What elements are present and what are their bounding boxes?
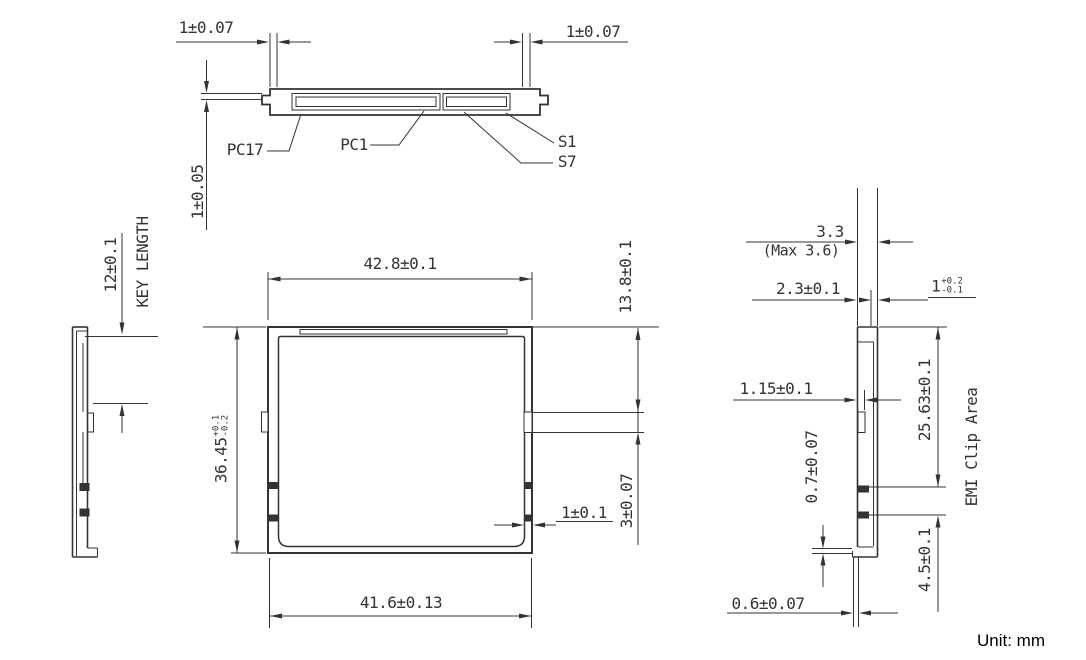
dim-rail-width bbox=[494, 522, 613, 528]
top-view-s-pin-row-inner bbox=[447, 97, 507, 107]
lip-tol-minus: -0.1 bbox=[941, 287, 963, 296]
overall-height-value: 36.45 bbox=[214, 438, 230, 484]
pin-label-s7: S7 bbox=[558, 154, 576, 170]
dim-guide-width bbox=[752, 298, 976, 303]
dim-label-left-key-offset: 1±0.07 bbox=[179, 20, 234, 36]
dim-bottom-lip bbox=[812, 525, 852, 587]
unit-note: Unit: mm bbox=[977, 631, 1045, 651]
dim-label-emi-clip-top: 25.63±0.1 bbox=[917, 359, 933, 441]
left-view-key-notch bbox=[88, 413, 94, 432]
dim-label-emi-clip-height: 4.5±0.1 bbox=[917, 528, 933, 592]
dim-label-step: 1.15±0.1 bbox=[739, 381, 812, 397]
dim-label-key-length: 12±0.1 bbox=[103, 238, 119, 293]
top-view-s-pin-row bbox=[443, 94, 510, 111]
front-view-drawing bbox=[203, 272, 659, 628]
dim-label-thickness: 3.3 bbox=[816, 224, 843, 240]
dim-label-slot-from-top: 13.8±0.1 bbox=[618, 240, 634, 313]
dim-label-rail-width: 1±0.1 bbox=[561, 505, 607, 521]
left-view-emi-clip-lower bbox=[80, 509, 90, 517]
dim-label-bottom-lip: 0.7±0.07 bbox=[804, 430, 820, 503]
dim-emi-clip-top bbox=[879, 327, 947, 487]
dim-label-lip: 1+0.2-0.1 bbox=[931, 278, 963, 297]
front-view-inner-outline bbox=[279, 337, 525, 547]
pin-label-pc1: PC1 bbox=[340, 137, 367, 153]
lip-value: 1 bbox=[931, 279, 940, 295]
front-view-emi-clips bbox=[269, 482, 533, 522]
overall-height-tol-minus: -0.2 bbox=[222, 415, 231, 437]
front-view-top-lip bbox=[300, 330, 507, 335]
right-view-key-notch bbox=[858, 412, 865, 433]
right-view-emi-clip-lower bbox=[858, 512, 869, 519]
mechanical-drawing-canvas: 1±0.07 1±0.07 1±0.05 PC17 PC1 S1 S7 12±0… bbox=[0, 0, 1086, 660]
pin-leader-lines bbox=[267, 111, 554, 163]
front-view-right-key-notch bbox=[524, 412, 532, 433]
dim-label-lip-thickness: 1±0.05 bbox=[190, 165, 206, 220]
dim-right-key-offset bbox=[494, 33, 628, 87]
dim-label-slot-height: 3±0.07 bbox=[619, 474, 635, 529]
dim-label-thickness-max: (Max 3.6) bbox=[763, 244, 840, 259]
top-view-pc-pin-row-inner bbox=[296, 97, 436, 107]
left-view-emi-clip-upper bbox=[80, 483, 90, 491]
pin-label-s1: S1 bbox=[558, 134, 576, 150]
dim-label-overall-width: 42.8±0.1 bbox=[363, 256, 436, 272]
dim-label-overall-height: 36.45+0.1-0.2 bbox=[213, 415, 232, 483]
dim-overall-width bbox=[268, 272, 532, 320]
pin-label-pc17: PC17 bbox=[227, 142, 264, 158]
front-view-left-key-notch bbox=[262, 412, 269, 432]
front-view-outer-outline bbox=[268, 327, 532, 553]
emi-clip-area-label: EMI Clip Area bbox=[964, 388, 980, 507]
dim-label-right-key-offset: 1±0.07 bbox=[566, 24, 621, 40]
top-view-card-outline bbox=[262, 89, 548, 115]
right-view-emi-clip-upper bbox=[858, 486, 869, 493]
dim-label-tab-width: 0.6±0.07 bbox=[731, 596, 804, 612]
key-length-text-label: KEY LENGTH bbox=[135, 216, 151, 307]
dim-emi-clip-height bbox=[936, 516, 941, 613]
dim-label-guide-width: 2.3±0.1 bbox=[776, 281, 840, 297]
top-view-pc-pin-row bbox=[292, 94, 440, 111]
dim-label-bottom-width: 41.6±0.13 bbox=[360, 595, 442, 611]
dim-left-key-offset bbox=[176, 33, 311, 87]
